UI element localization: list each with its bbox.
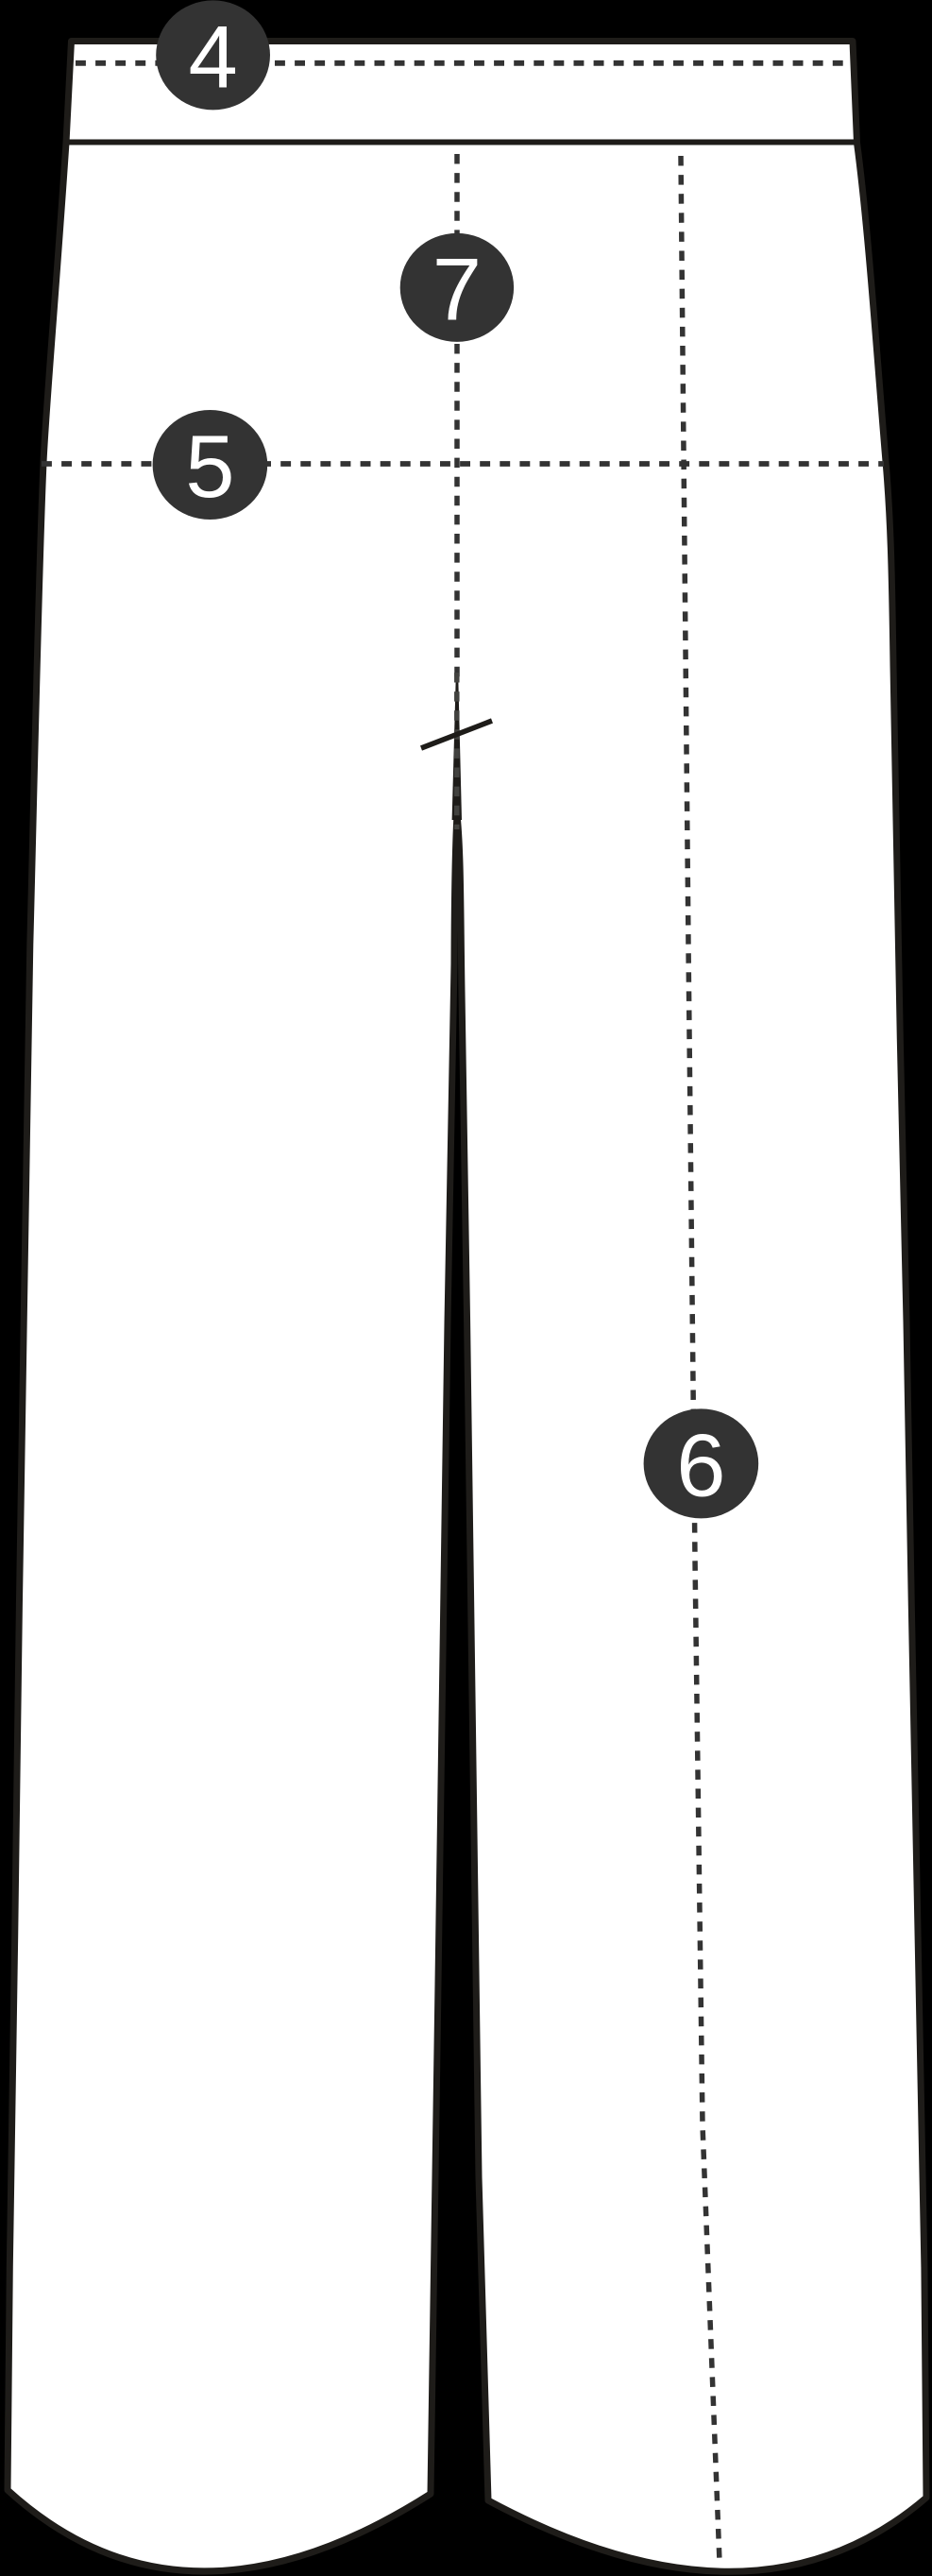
svg-text:5: 5 — [185, 417, 234, 516]
svg-text:4: 4 — [188, 7, 237, 106]
svg-text:6: 6 — [676, 1415, 725, 1514]
svg-text:7: 7 — [432, 239, 482, 338]
